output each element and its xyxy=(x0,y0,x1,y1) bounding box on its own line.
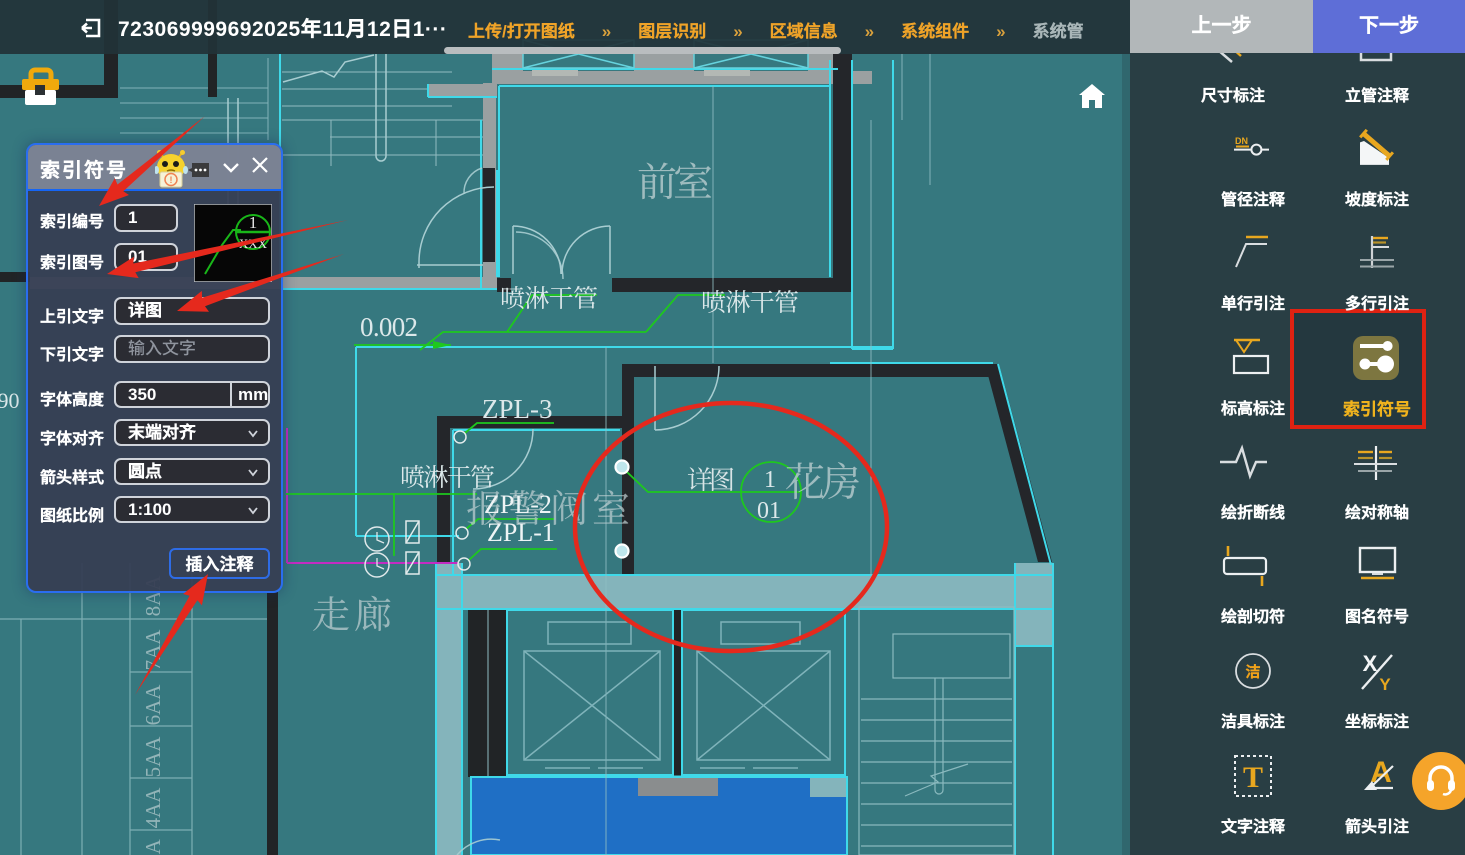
svg-text:1: 1 xyxy=(764,467,776,493)
svg-text:喷淋干管: 喷淋干管 xyxy=(701,289,799,317)
svg-text:详图: 详图 xyxy=(687,466,735,495)
svg-text:ZPL-2: ZPL-2 xyxy=(484,490,552,519)
svg-text:DN: DN xyxy=(1235,136,1248,146)
svg-text:花房: 花房 xyxy=(785,460,861,505)
svg-text:0.002: 0.002 xyxy=(360,312,418,342)
svg-text:ZPL-1: ZPL-1 xyxy=(487,518,555,547)
svg-text:洁: 洁 xyxy=(1245,664,1260,681)
svg-text:喷淋干管: 喷淋干管 xyxy=(500,285,598,313)
svg-text:7AA: 7AA xyxy=(141,629,165,671)
svg-text:4AA: 4AA xyxy=(141,787,165,829)
svg-text:Y: Y xyxy=(1379,675,1391,693)
svg-text:01: 01 xyxy=(757,498,781,524)
svg-text:5AA: 5AA xyxy=(141,736,165,778)
svg-text:3A: 3A xyxy=(141,838,165,855)
svg-text:1: 1 xyxy=(249,213,258,232)
svg-text:!: ! xyxy=(170,175,173,185)
svg-text:ZPL-3: ZPL-3 xyxy=(482,394,553,424)
svg-text:T: T xyxy=(1243,761,1263,794)
svg-text:XXX: XXX xyxy=(239,236,268,251)
svg-text:.90: .90 xyxy=(0,388,20,413)
svg-text:6AA: 6AA xyxy=(141,684,165,726)
svg-text:喷淋干管: 喷淋干管 xyxy=(400,464,495,492)
svg-text:前室: 前室 xyxy=(637,160,713,205)
